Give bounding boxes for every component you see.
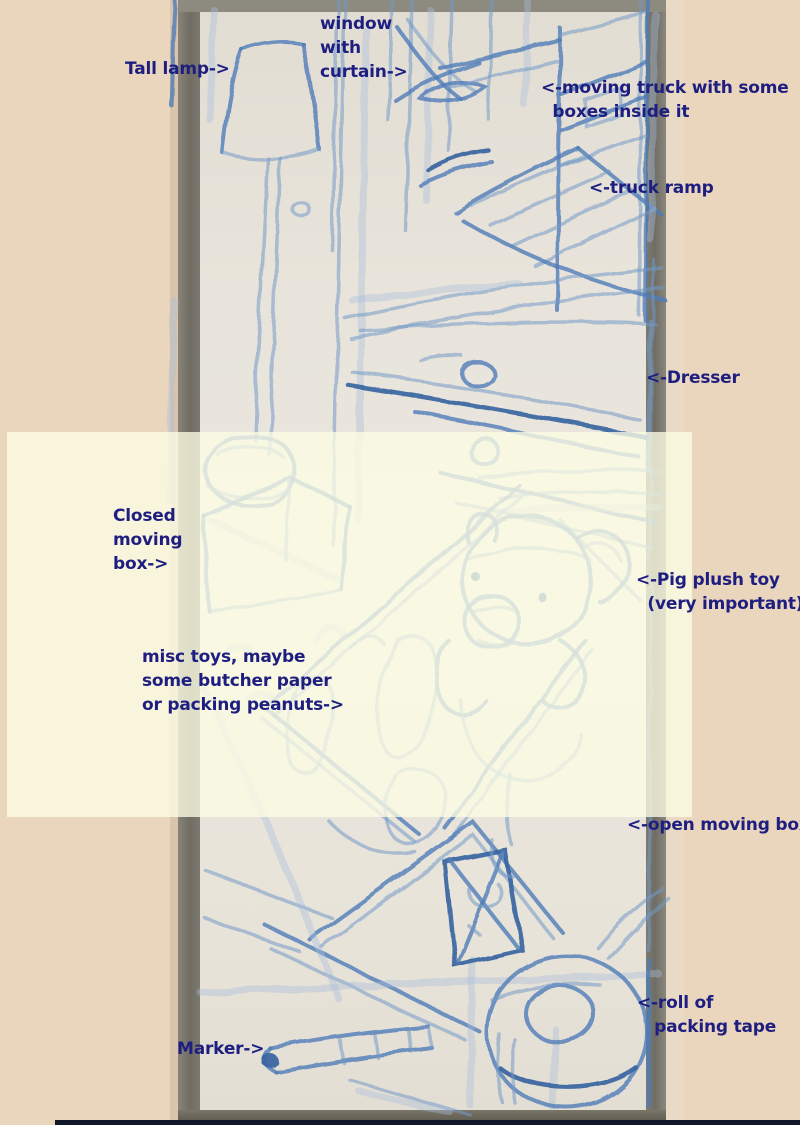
bottom-dark-strip — [55, 1120, 800, 1125]
label-truck-ramp: <-truck ramp — [589, 176, 714, 200]
label-marker: Marker-> — [177, 1037, 264, 1061]
label-misc-toys: misc toys, maybe some butcher paper or p… — [142, 645, 344, 717]
label-window: window with curtain-> — [320, 12, 408, 84]
label-closed-box: Closed moving box-> — [113, 504, 182, 576]
window-curtain-sketch — [388, 0, 528, 230]
label-open-box: <-open moving box — [627, 813, 800, 837]
label-moving-truck: <-moving truck with some boxes inside it — [541, 76, 789, 124]
annotated-moving-sketch: Tall lamp-> window with curtain-> <-movi… — [0, 0, 800, 1125]
label-pig-plush: <-Pig plush toy (very important) — [636, 568, 800, 616]
label-packing-tape: <-roll of packing tape — [637, 991, 776, 1039]
label-tall-lamp: Tall lamp-> — [125, 57, 230, 81]
label-dresser: <-Dresser — [646, 366, 740, 390]
highlight-band — [7, 432, 692, 817]
